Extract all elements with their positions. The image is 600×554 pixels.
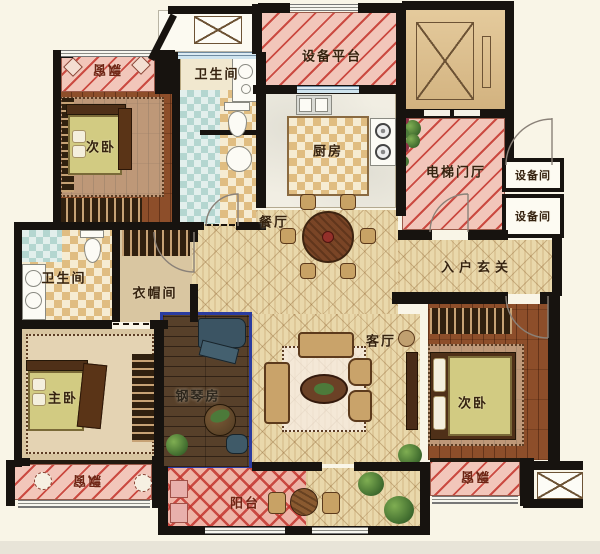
wall	[190, 284, 198, 322]
bedroom-br-wardrobe	[430, 308, 512, 334]
bedroom-tl-wardrobe	[58, 198, 142, 222]
window-sill-line	[430, 458, 520, 462]
balcony-chair	[322, 492, 340, 514]
wall	[398, 230, 432, 240]
room-label-equip-bottom: 设备间	[515, 208, 551, 224]
room-label-hall: 电梯门厅	[426, 162, 486, 181]
floor-plan: 飘窗 次卧 卫生间 设备平台 厨房 电梯门厅 设备间 设备间 餐厅 入户玄关 卫…	[0, 0, 600, 554]
wall	[420, 462, 430, 534]
window	[432, 496, 518, 504]
wall	[172, 52, 180, 228]
dining-table-center	[322, 231, 334, 243]
master-bed-headboard	[26, 360, 88, 371]
wall	[402, 1, 514, 10]
balcony-cabinet	[170, 503, 188, 523]
wall	[53, 50, 61, 228]
window	[312, 527, 368, 534]
room-label-living: 客厅	[366, 331, 396, 350]
flower-icon	[34, 472, 52, 490]
dining-chair	[300, 194, 316, 210]
balcony-plant-icon	[358, 472, 384, 496]
room-label-kitchen: 厨房	[313, 141, 343, 160]
balcony-cabinet	[170, 480, 188, 498]
room-label-foyer: 入户玄关	[441, 257, 513, 276]
balcony-plant-icon	[384, 496, 414, 524]
wall	[14, 320, 112, 329]
master-pillow	[32, 378, 46, 391]
window	[61, 50, 155, 57]
bath-top-shower	[180, 90, 220, 224]
room-label-cloak: 衣帽间	[132, 283, 177, 302]
wall	[392, 292, 508, 304]
elevator-door-gap	[454, 110, 480, 116]
bedroom-tl-bed-headboard	[66, 104, 126, 115]
room-label-bath-left: 卫生间	[41, 268, 86, 287]
wall	[523, 499, 583, 508]
pouf-icon	[398, 330, 415, 347]
room-label-bedroom-tl: 次卧	[86, 137, 116, 156]
room-label-bay-tl: 飘窗	[91, 62, 121, 81]
wall	[158, 466, 168, 532]
dining-chair	[340, 194, 356, 210]
window-shaft-icon	[194, 16, 242, 44]
room-label-bay-br: 飘窗	[459, 469, 489, 488]
room-label-bedroom-br: 次卧	[458, 393, 488, 412]
wall	[14, 222, 22, 467]
coffee-table-deco	[314, 383, 334, 395]
toilet-tank-icon	[224, 102, 250, 111]
window	[290, 4, 360, 11]
sofa-left	[264, 362, 290, 424]
wall	[6, 460, 15, 506]
sink-icon	[25, 292, 42, 309]
bedroom-br-pillow	[433, 396, 446, 430]
dining-chair	[300, 263, 316, 279]
bedroom-tl-pillow	[72, 145, 86, 158]
room-label-platform: 设备平台	[302, 46, 362, 65]
burner-icon	[375, 144, 391, 160]
dining-chair	[360, 228, 376, 244]
room-label-bay-bl: 飘窗	[71, 473, 101, 492]
wall	[552, 238, 562, 296]
door-opening-dashed	[113, 323, 149, 325]
room-label-balcony: 阳台	[230, 493, 260, 512]
bedroom-tl-pillow	[72, 130, 86, 143]
wall	[14, 222, 176, 230]
wall	[112, 228, 120, 322]
bath-top-divider	[200, 130, 256, 135]
room-label-master: 主卧	[48, 388, 78, 407]
door-opening-dashed	[205, 224, 235, 226]
bath-left-shower	[22, 230, 62, 262]
room-label-bath-top: 卫生间	[194, 64, 239, 83]
sofa-top	[298, 332, 354, 358]
elevator-car-icon	[416, 22, 474, 100]
sink-basin-icon	[299, 98, 312, 112]
wall	[468, 230, 508, 240]
room-label-dining: 餐厅	[259, 212, 289, 231]
piano-plant-icon	[166, 434, 188, 456]
wall	[354, 462, 420, 471]
balcony-table	[290, 488, 318, 516]
wall	[190, 228, 198, 242]
elevator-door-gap	[424, 110, 450, 116]
wall	[154, 320, 164, 468]
dining-chair	[340, 263, 356, 279]
burner-icon	[375, 123, 391, 139]
window	[178, 52, 256, 59]
ac-platform-icon	[537, 472, 583, 499]
wall	[14, 458, 30, 466]
bedroom-tl-duvet	[118, 108, 132, 170]
page-bottom-shade	[0, 541, 600, 554]
window-sill-line	[22, 460, 154, 464]
wall	[523, 461, 583, 470]
wall	[505, 116, 514, 162]
elevator-counterweight-icon	[482, 36, 491, 88]
room-label-piano: 钢琴房	[175, 386, 220, 405]
washer-knob-icon	[241, 84, 251, 94]
wall	[168, 6, 260, 14]
wall	[158, 526, 430, 535]
armchair-right	[348, 358, 372, 386]
window	[205, 527, 285, 534]
toilet-tank-icon	[80, 230, 104, 238]
flower-icon	[134, 474, 152, 492]
wall	[256, 52, 266, 208]
cloakroom-wardrobe	[122, 230, 190, 256]
room-label-equip-top: 设备间	[515, 167, 551, 183]
sink-icon	[25, 270, 42, 287]
balcony-chair	[268, 492, 286, 514]
window	[297, 86, 359, 93]
sink-icon	[226, 146, 252, 172]
sink-basin-icon	[315, 98, 328, 112]
master-pillow	[32, 393, 46, 406]
washer-door-icon	[238, 64, 253, 79]
basket-icon	[226, 434, 248, 454]
tv-console	[406, 352, 418, 430]
wall	[548, 292, 560, 468]
wall	[252, 462, 322, 471]
window	[18, 500, 150, 508]
wall	[505, 1, 514, 117]
wall	[258, 3, 290, 13]
bedroom-br-pillow	[433, 358, 446, 392]
armchair-right	[348, 390, 372, 422]
